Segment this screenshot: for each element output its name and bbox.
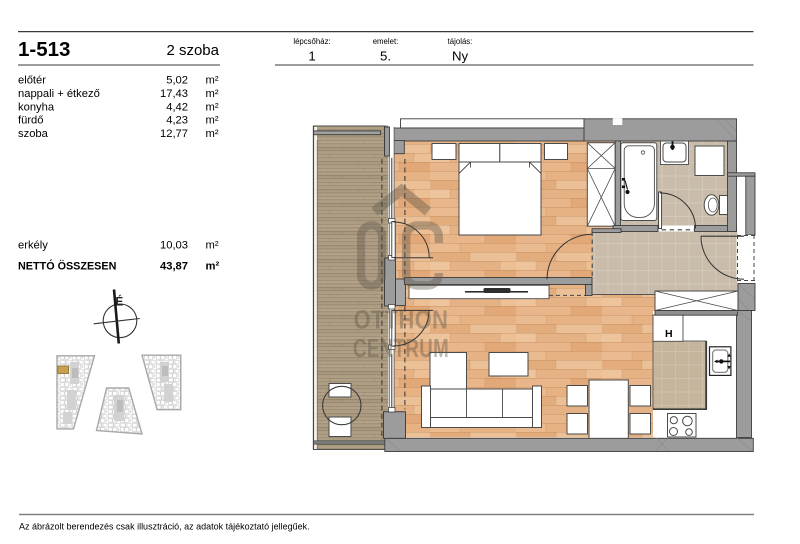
svg-text:fürdő: fürdő	[18, 115, 44, 127]
svg-text:4,23: 4,23	[166, 115, 188, 127]
svg-text:m²: m²	[206, 101, 219, 113]
svg-text:lépcsőház:: lépcsőház:	[293, 37, 330, 46]
svg-text:OTTHON: OTTHON	[354, 306, 449, 335]
svg-text:erkély: erkély	[18, 240, 48, 252]
svg-text:É: É	[116, 296, 124, 309]
svg-text:1-513: 1-513	[18, 38, 70, 61]
svg-text:5.: 5.	[380, 48, 391, 63]
svg-text:tájolás:: tájolás:	[448, 37, 473, 46]
svg-text:1: 1	[308, 48, 315, 63]
svg-text:szoba: szoba	[18, 128, 49, 140]
svg-text:emelet:: emelet:	[373, 37, 399, 46]
svg-text:nappali + étkező: nappali + étkező	[18, 88, 100, 100]
svg-text:konyha: konyha	[18, 101, 55, 113]
svg-text:H: H	[665, 328, 673, 340]
svg-text:NETTÓ ÖSSZESEN: NETTÓ ÖSSZESEN	[18, 259, 117, 272]
svg-text:10,03: 10,03	[160, 240, 188, 252]
svg-text:5,02: 5,02	[166, 75, 188, 87]
svg-text:előtér: előtér	[18, 75, 46, 87]
svg-text:4,42: 4,42	[166, 101, 188, 113]
svg-text:m²: m²	[206, 88, 219, 100]
svg-text:m²: m²	[206, 261, 220, 273]
svg-text:12,77: 12,77	[160, 128, 188, 140]
svg-text:m²: m²	[206, 75, 219, 87]
svg-text:43,87: 43,87	[160, 261, 188, 273]
svg-text:m²: m²	[206, 128, 219, 140]
svg-text:CENTRUM: CENTRUM	[353, 333, 449, 363]
svg-text:Ny: Ny	[452, 48, 469, 63]
svg-text:17,43: 17,43	[160, 88, 188, 100]
svg-text:m²: m²	[206, 240, 219, 252]
svg-text:m²: m²	[206, 115, 219, 127]
svg-text:2 szoba: 2 szoba	[166, 42, 219, 59]
svg-text:Az ábrázolt berendezés csak il: Az ábrázolt berendezés csak illusztráció…	[19, 522, 310, 532]
